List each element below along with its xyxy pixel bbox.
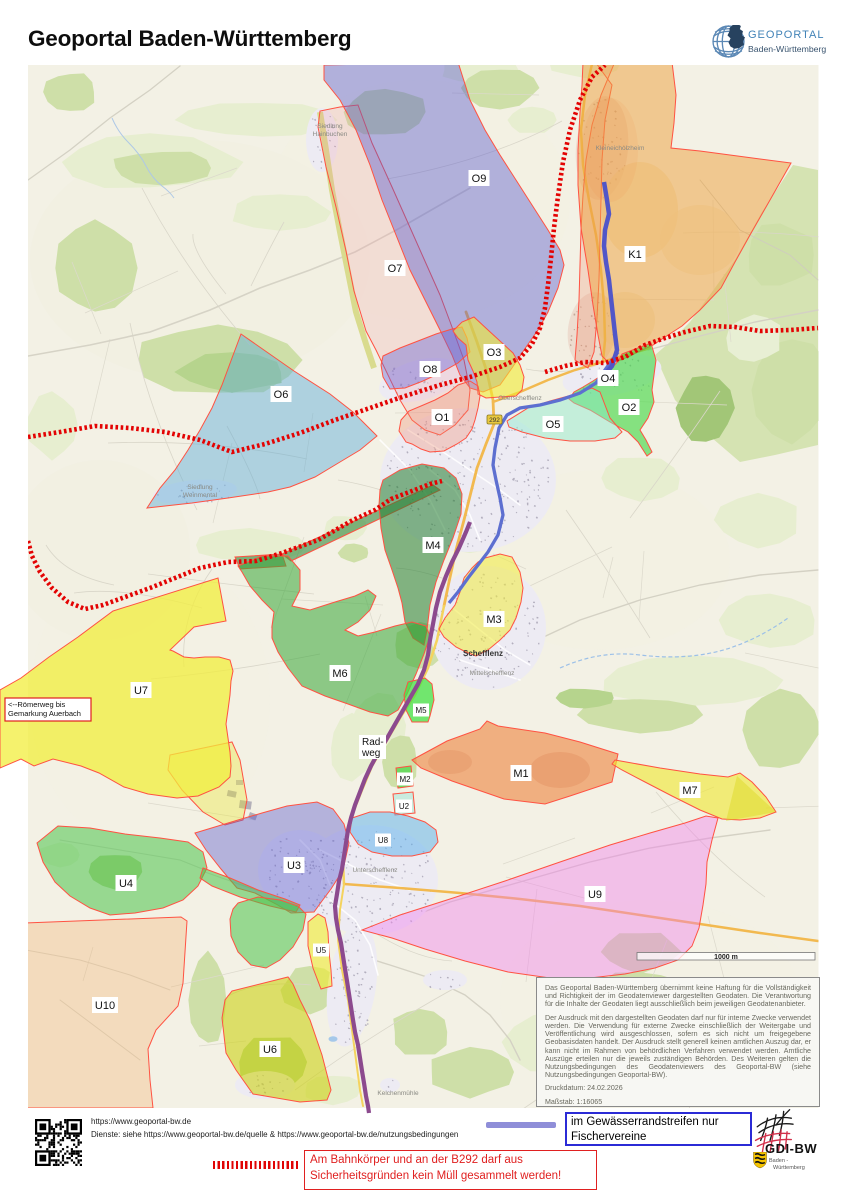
svg-text:Unterschefflenz: Unterschefflenz [352, 867, 397, 874]
svg-text:Rad-: Rad- [362, 737, 384, 748]
svg-text:M5: M5 [415, 706, 427, 715]
svg-text:Gemarkung Auerbach: Gemarkung Auerbach [8, 709, 81, 718]
svg-text:Kelchenmühle: Kelchenmühle [377, 1090, 419, 1097]
svg-text:Siedlung: Siedlung [317, 123, 343, 130]
svg-text:U5: U5 [316, 946, 327, 955]
svg-text:U6: U6 [263, 1044, 277, 1056]
svg-text:M1: M1 [513, 768, 528, 780]
svg-text:M4: M4 [425, 540, 440, 552]
svg-text:Oberschefflenz: Oberschefflenz [498, 395, 542, 402]
svg-text:O9: O9 [472, 173, 487, 185]
svg-text:Mittelschefflenz: Mittelschefflenz [470, 670, 515, 677]
svg-text:O8: O8 [423, 364, 438, 376]
svg-text:M6: M6 [332, 668, 347, 680]
svg-text:U9: U9 [588, 889, 602, 901]
svg-text:O7: O7 [388, 263, 403, 275]
svg-text:Hainbuchen: Hainbuchen [313, 131, 348, 138]
svg-text:U3: U3 [287, 860, 301, 872]
svg-text:U10: U10 [95, 1000, 115, 1012]
svg-text:M3: M3 [486, 614, 501, 626]
svg-text:O4: O4 [601, 373, 616, 385]
svg-text:O2: O2 [622, 402, 637, 414]
svg-text:M7: M7 [682, 785, 697, 797]
svg-text:Weinmental: Weinmental [183, 492, 218, 499]
svg-text:O1: O1 [435, 412, 450, 424]
svg-text:Kleineicholzheim: Kleineicholzheim [596, 145, 645, 152]
svg-text:292: 292 [489, 417, 500, 424]
svg-text:K1: K1 [628, 249, 641, 261]
svg-text:U7: U7 [134, 685, 148, 697]
svg-text:U8: U8 [378, 836, 389, 845]
svg-text:O3: O3 [487, 347, 502, 359]
svg-text:M2: M2 [399, 775, 411, 784]
svg-text:<--Römerweg bis: <--Römerweg bis [8, 700, 66, 709]
svg-text:U4: U4 [119, 878, 133, 890]
svg-text:Siedlung: Siedlung [187, 484, 213, 491]
svg-text:Schefflenz: Schefflenz [463, 649, 503, 658]
svg-text:weg: weg [361, 748, 380, 759]
svg-text:1000 m: 1000 m [714, 954, 738, 961]
svg-text:O5: O5 [546, 419, 561, 431]
svg-text:U2: U2 [399, 802, 410, 811]
svg-text:O6: O6 [274, 389, 289, 401]
